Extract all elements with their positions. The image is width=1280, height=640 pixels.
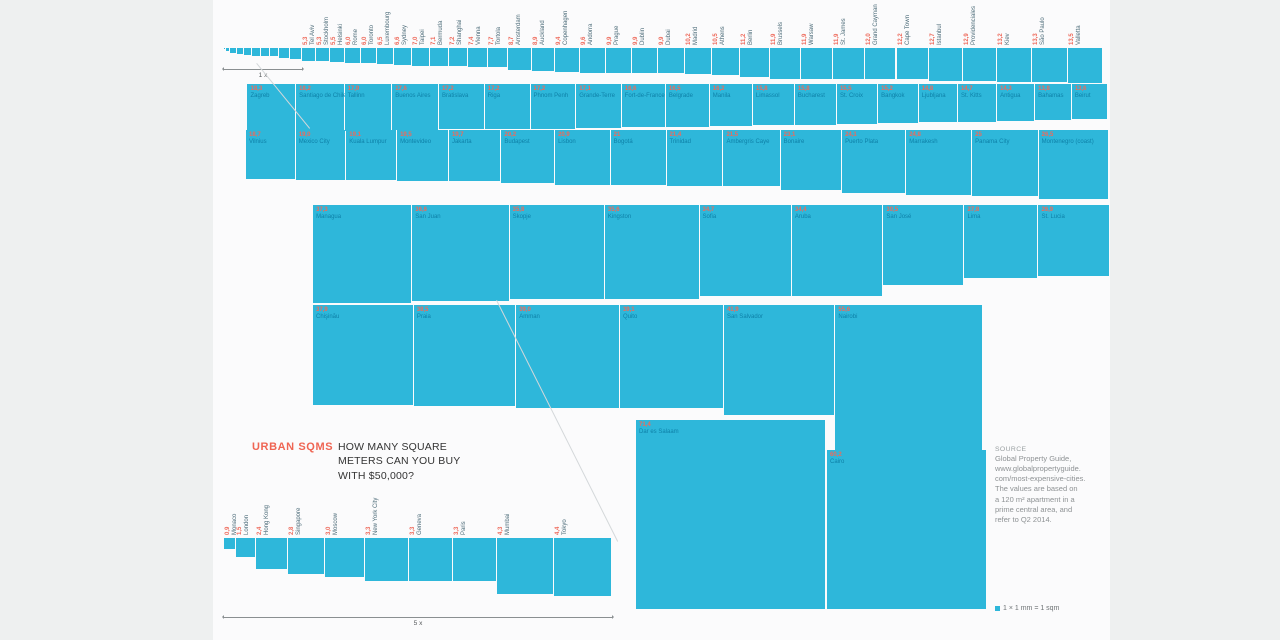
square-ljubljana: [919, 84, 957, 122]
square-manila: [710, 84, 752, 126]
square-kiev: [997, 48, 1031, 82]
legend-swatch: [995, 606, 1000, 611]
square-bermuda: [430, 48, 448, 66]
square-monaco: [224, 538, 235, 549]
square-fort-de-france: [622, 84, 665, 127]
square-trinidad: [667, 130, 723, 186]
source-note: SOURCE Global Property Guide, www.global…: [995, 446, 1111, 525]
square-sofia: [700, 205, 791, 296]
square-warsaw: [801, 48, 832, 79]
square-san-salvador: [724, 305, 834, 415]
square-copenhagen: [555, 48, 579, 72]
square-madrid: [685, 48, 711, 74]
square-bucharest: [795, 84, 836, 125]
chart-question: HOW MANY SQUARE METERS CAN YOU BUY WITH …: [338, 440, 460, 483]
square-skopje: [510, 205, 604, 299]
square-panama-city: [972, 130, 1038, 196]
square-bratislava: [439, 84, 484, 129]
square-mexico-city: [296, 130, 346, 180]
square-prague: [606, 48, 631, 73]
square-paris: [453, 538, 496, 581]
square-puerto-plata: [842, 130, 905, 193]
square-hong-kong: [256, 538, 287, 569]
square-london: [236, 538, 255, 557]
square-sydney: [394, 48, 411, 65]
square-san-juan: [412, 205, 508, 301]
square-valletta: [1068, 48, 1103, 83]
square-bonaire: [781, 130, 841, 190]
square-phnom-penh: [531, 84, 576, 129]
square-luxembourg: [377, 48, 393, 64]
square-mumbai: [279, 48, 289, 58]
square-kuala-lumpur: [346, 130, 396, 180]
square-berlin: [740, 48, 769, 77]
square-st-james: [833, 48, 864, 79]
legend: 1 × 1 mm = 1 sqm: [995, 605, 1059, 612]
square-singapore: [237, 48, 243, 54]
square-tokyo: [290, 48, 301, 59]
square-mumbai: [497, 538, 553, 594]
source-heading: SOURCE: [995, 446, 1111, 453]
square-taipei: [412, 48, 430, 66]
square-aruba: [792, 205, 883, 296]
square-london: [226, 48, 229, 51]
square-istanbul: [929, 48, 962, 81]
square-grande-terre: [576, 84, 620, 128]
square-ambergris-caye: [723, 130, 779, 186]
square-moscow: [244, 48, 251, 55]
square-jakarta: [449, 130, 500, 181]
square-praia: [414, 305, 515, 406]
square-st-croix: [837, 84, 877, 124]
square-brussels: [770, 48, 801, 79]
square-tallinn: [345, 84, 392, 131]
square-shanghai: [449, 48, 467, 66]
square-monaco: [224, 48, 225, 49]
source-text: Global Property Guide, www.globalpropert…: [995, 454, 1111, 525]
square-auckland: [532, 48, 555, 71]
square-nairobi: [835, 305, 982, 452]
square-helsinki: [330, 48, 344, 62]
square-managua: [313, 205, 411, 303]
square-athens: [712, 48, 739, 75]
square-grand-cayman: [865, 48, 896, 79]
square-bogot: [611, 130, 666, 185]
scale-marker-line-5-x: [224, 617, 612, 618]
square-riga: [485, 84, 530, 129]
square-amman: [516, 305, 619, 408]
square-new-york-city: [252, 48, 260, 56]
square-moscow: [325, 538, 364, 577]
square-bangkok: [878, 84, 917, 123]
square-st-lucia: [1038, 205, 1109, 276]
square-montevideo: [397, 130, 448, 181]
legend-label: 1 × 1 mm = 1 sqm: [1003, 605, 1059, 612]
square-beirut: [1072, 84, 1107, 119]
scale-marker-label-5-x: 5 x: [414, 620, 423, 627]
square-singapore: [288, 538, 324, 574]
square-andorra: [580, 48, 605, 73]
square-rome: [345, 48, 360, 63]
square-cape-town: [897, 48, 928, 79]
square-tortola: [488, 48, 507, 67]
square-amsterdam: [508, 48, 530, 70]
square-tel-aviv: [302, 48, 315, 61]
square-lisbon: [555, 130, 610, 185]
square-providenciales: [963, 48, 996, 81]
square-bahamas: [1035, 84, 1071, 120]
square-geneva: [409, 538, 452, 581]
square-st-kitts: [958, 84, 996, 122]
square-marrakesh: [906, 130, 971, 195]
square-san-jos: [883, 205, 963, 285]
square-tokyo: [554, 538, 612, 596]
square-zagreb: [247, 84, 295, 132]
square-belgrade: [666, 84, 709, 127]
square-stockholm: [316, 48, 329, 61]
square-antigua: [997, 84, 1034, 121]
square-montenegro-coast: [1039, 130, 1108, 199]
square-lima: [964, 205, 1037, 278]
square-dubai: [658, 48, 683, 73]
square-kingston: [605, 205, 699, 299]
square-buenos-aires: [392, 84, 438, 130]
square-new-york-city: [365, 538, 408, 581]
square-quito: [620, 305, 723, 408]
square-dublin: [632, 48, 657, 73]
square-santiago-de-chile: [296, 84, 343, 131]
square-chi-in-u: [313, 305, 413, 405]
square-limassol: [753, 84, 794, 125]
square-toronto: [361, 48, 376, 63]
square-s-o-paulo: [1032, 48, 1066, 82]
square-cairo: [827, 450, 986, 609]
square-vienna: [468, 48, 487, 67]
infographic-canvas: URBAN SQMS HOW MANY SQUARE METERS CAN YO…: [0, 0, 1280, 640]
square-budapest: [501, 130, 554, 183]
square-paris: [270, 48, 278, 56]
square-geneva: [261, 48, 269, 56]
chart-brand-title: URBAN SQMS: [252, 441, 333, 453]
square-vilnius: [246, 130, 295, 179]
square-dar-es-salaam: [636, 420, 825, 609]
square-hong-kong: [230, 48, 235, 53]
